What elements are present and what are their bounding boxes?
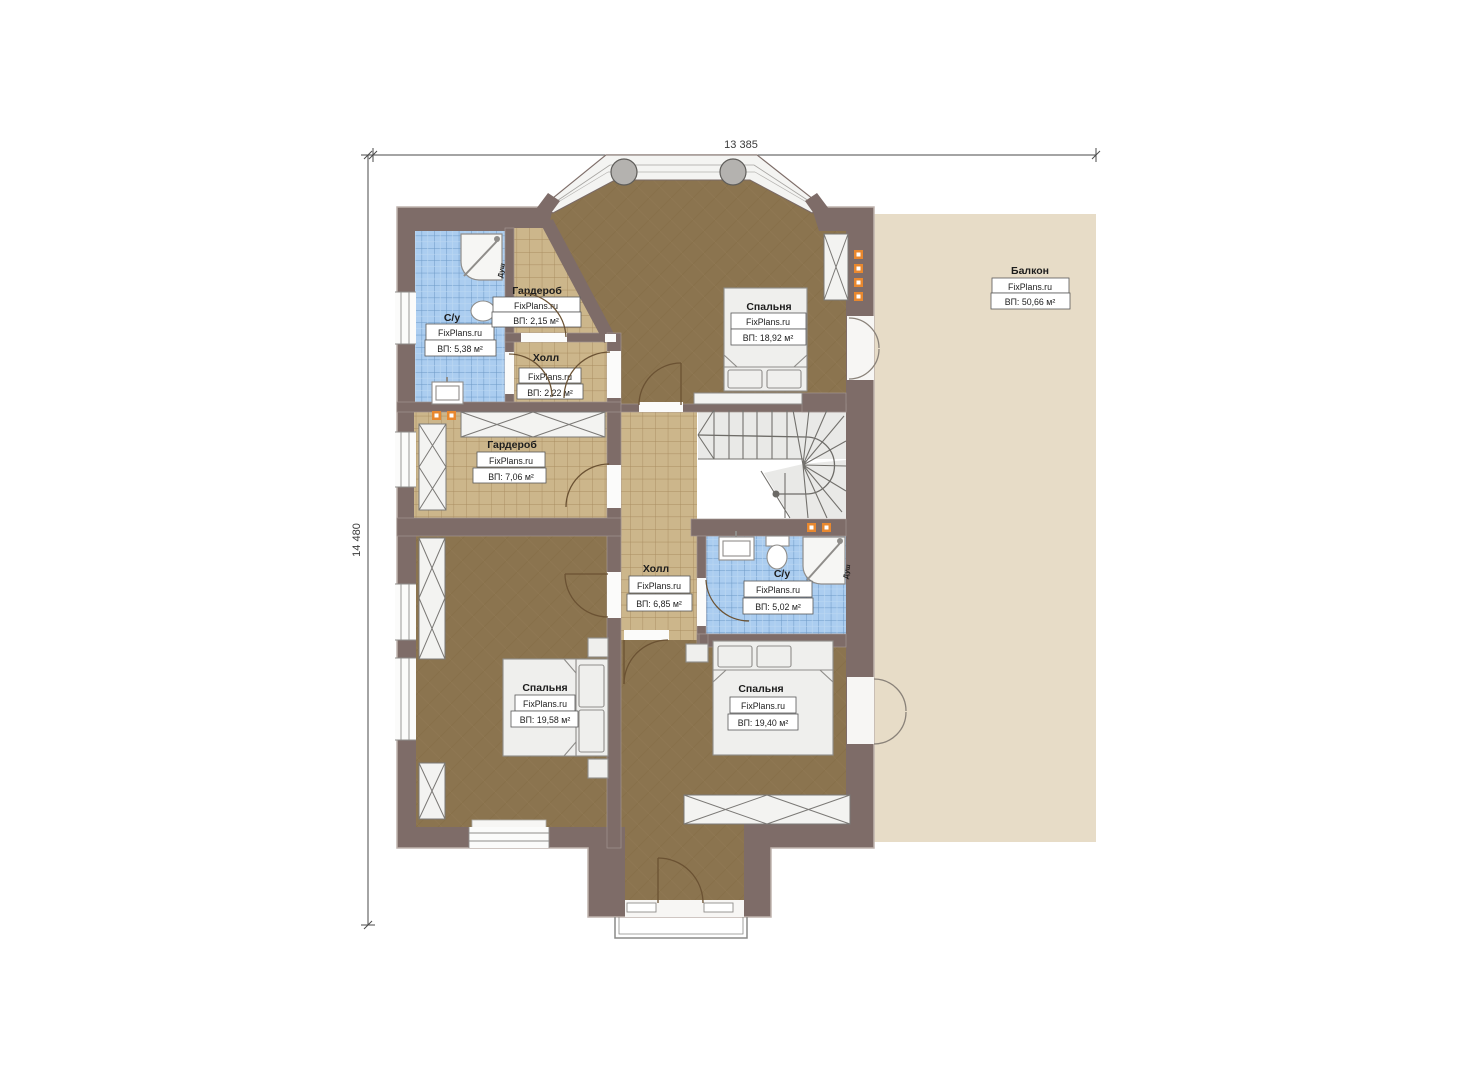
svg-text:ВП: 19,58 м²: ВП: 19,58 м² — [520, 715, 571, 725]
svg-text:FixPlans.ru: FixPlans.ru — [438, 328, 482, 338]
svg-text:Спальня: Спальня — [522, 682, 567, 694]
svg-text:FixPlans.ru: FixPlans.ru — [489, 456, 533, 466]
svg-text:FixPlans.ru: FixPlans.ru — [746, 317, 790, 327]
svg-text:С/у: С/у — [444, 312, 461, 324]
svg-text:ВП: 7,06 м²: ВП: 7,06 м² — [488, 472, 534, 482]
svg-text:FixPlans.ru: FixPlans.ru — [528, 372, 572, 382]
svg-text:ВП: 50,66 м²: ВП: 50,66 м² — [1005, 297, 1056, 307]
svg-text:Холл: Холл — [533, 352, 559, 364]
svg-text:ВП: 5,38 м²: ВП: 5,38 м² — [437, 344, 483, 354]
svg-text:ВП: 18,92 м²: ВП: 18,92 м² — [743, 333, 794, 343]
svg-text:Холл: Холл — [643, 563, 669, 575]
svg-text:FixPlans.ru: FixPlans.ru — [523, 699, 567, 709]
svg-text:FixPlans.ru: FixPlans.ru — [1008, 282, 1052, 292]
svg-text:ВП: 2,15 м²: ВП: 2,15 м² — [513, 316, 559, 326]
svg-text:ВП: 5,02 м²: ВП: 5,02 м² — [755, 602, 801, 612]
svg-text:ВП: 2,22 м²: ВП: 2,22 м² — [527, 388, 573, 398]
svg-text:Спальня: Спальня — [738, 683, 783, 695]
svg-text:FixPlans.ru: FixPlans.ru — [741, 701, 785, 711]
svg-text:Гардероб: Гардероб — [512, 285, 562, 297]
svg-text:Гардероб: Гардероб — [487, 439, 537, 451]
svg-text:FixPlans.ru: FixPlans.ru — [756, 585, 800, 595]
svg-text:С/у: С/у — [774, 568, 791, 580]
svg-text:FixPlans.ru: FixPlans.ru — [637, 581, 681, 591]
svg-text:Балкон: Балкон — [1011, 265, 1049, 277]
svg-text:14 480: 14 480 — [351, 523, 363, 557]
svg-text:ВП: 19,40 м²: ВП: 19,40 м² — [738, 718, 789, 728]
svg-text:13 385: 13 385 — [724, 139, 758, 151]
svg-text:ВП: 6,85 м²: ВП: 6,85 м² — [636, 599, 682, 609]
svg-text:Спальня: Спальня — [746, 301, 791, 313]
